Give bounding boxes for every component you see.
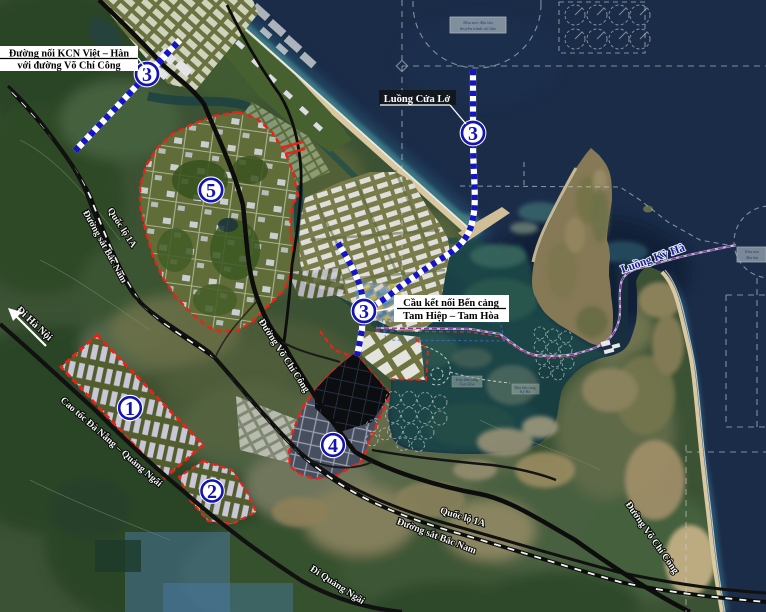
svg-text:đậu tàu: đậu tàu [746,255,759,260]
svg-text:Khu neo: Khu neo [745,249,759,254]
svg-text:thuyền tránh trú bão: thuyền tránh trú bão [460,26,497,31]
svg-text:3: 3 [359,301,369,323]
svg-text:Khu neo đậu tàu: Khu neo đậu tàu [463,20,493,25]
svg-text:Cầu kết nối Bến cảng: Cầu kết nối Bến cảng [403,298,499,309]
svg-text:Luồng Cửa Lở: Luồng Cửa Lở [384,94,451,105]
svg-text:3: 3 [142,64,152,86]
svg-text:4: 4 [328,435,338,457]
svg-text:Đường nối KCN Việt – Hàn: Đường nối KCN Việt – Hàn [9,49,129,60]
svg-text:5: 5 [206,180,216,202]
svg-text:3: 3 [468,123,478,145]
svg-text:2: 2 [207,481,217,503]
svg-text:Tam Hòa: Tam Hòa [460,382,475,387]
svg-text:Kỳ Hà: Kỳ Hà [520,390,530,394]
svg-text:1: 1 [125,398,135,420]
svg-text:với đường Võ Chí Công: với đường Võ Chí Công [17,61,120,72]
svg-text:Tam Hiệp – Tam Hòa: Tam Hiệp – Tam Hòa [403,311,500,322]
